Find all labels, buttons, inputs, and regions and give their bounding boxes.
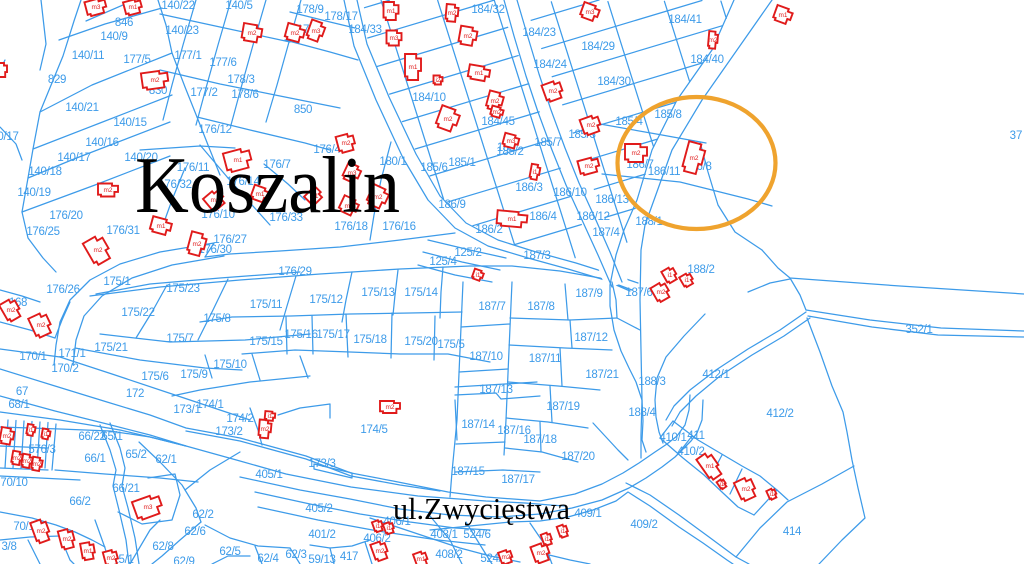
svg-text:172: 172 [126, 388, 144, 400]
svg-text:m2: m2 [375, 548, 384, 555]
svg-text:187/12: 187/12 [574, 332, 607, 344]
svg-text:i1: i1 [667, 272, 672, 279]
svg-text:178/6: 178/6 [231, 89, 258, 101]
svg-text:175/8: 175/8 [203, 313, 230, 325]
svg-text:187/6: 187/6 [625, 287, 652, 299]
svg-text:414: 414 [783, 526, 802, 538]
svg-text:829: 829 [48, 74, 66, 86]
svg-text:846: 846 [115, 17, 133, 29]
svg-text:m2: m2 [492, 109, 501, 116]
svg-text:m2: m2 [103, 187, 112, 194]
svg-text:i1: i1 [386, 525, 391, 532]
svg-text:m3: m3 [585, 9, 594, 16]
svg-text:i1: i1 [43, 431, 48, 438]
svg-text:175/23: 175/23 [166, 283, 199, 295]
svg-text:184/33: 184/33 [348, 24, 381, 36]
svg-text:401/2: 401/2 [308, 529, 335, 541]
svg-text:177/1: 177/1 [174, 50, 201, 62]
svg-text:184/24: 184/24 [533, 59, 567, 71]
svg-text:66/2: 66/2 [69, 496, 90, 508]
svg-text:i1: i1 [28, 427, 33, 434]
svg-text:i1: i1 [475, 272, 480, 279]
svg-text:m2: m2 [93, 247, 102, 254]
svg-text:184/30: 184/30 [597, 76, 630, 88]
svg-text:125/4: 125/4 [429, 256, 457, 268]
svg-text:62/6: 62/6 [184, 526, 205, 538]
svg-text:187/10: 187/10 [469, 351, 502, 363]
svg-text:m2: m2 [656, 289, 665, 296]
svg-text:m2: m2 [689, 155, 698, 162]
svg-text:68/1: 68/1 [8, 399, 29, 411]
svg-text:175/17: 175/17 [316, 329, 349, 341]
svg-text:m2: m2 [12, 455, 21, 462]
svg-text:170/1: 170/1 [19, 351, 46, 363]
svg-text:i1: i1 [684, 277, 689, 284]
svg-text:175/16: 175/16 [284, 329, 317, 341]
svg-text:184/32: 184/32 [471, 4, 504, 16]
svg-text:ul.Zwycięstwa: ul.Zwycięstwa [393, 491, 570, 526]
svg-text:176/25: 176/25 [26, 226, 59, 238]
svg-text:187/19: 187/19 [546, 401, 579, 413]
svg-text:m1: m1 [128, 4, 137, 11]
svg-text:184/10: 184/10 [412, 92, 445, 104]
svg-text:178/3: 178/3 [227, 74, 254, 86]
svg-text:i1: i1 [560, 528, 565, 535]
svg-text:185/7: 185/7 [534, 137, 561, 149]
svg-text:140/16: 140/16 [85, 137, 118, 149]
svg-text:174/5: 174/5 [360, 424, 387, 436]
svg-text:187/8: 187/8 [527, 301, 554, 313]
svg-text:m2: m2 [586, 122, 595, 129]
svg-text:184/41: 184/41 [668, 14, 701, 26]
svg-text:405/2: 405/2 [305, 503, 332, 515]
svg-text:178/17: 178/17 [324, 11, 357, 23]
svg-text:m2: m2 [32, 461, 41, 468]
svg-text:184/23: 184/23 [522, 27, 555, 39]
svg-text:187/9: 187/9 [575, 288, 602, 300]
svg-text:66/1: 66/1 [84, 453, 105, 465]
svg-text:409/1: 409/1 [574, 508, 601, 520]
svg-text:m2: m2 [463, 33, 472, 40]
svg-text:m2: m2 [36, 322, 45, 329]
svg-text:417: 417 [340, 551, 358, 563]
svg-text:175/10: 175/10 [213, 359, 246, 371]
svg-text:412/1: 412/1 [702, 369, 729, 381]
svg-text:62/3: 62/3 [285, 549, 306, 561]
svg-text:187/20: 187/20 [561, 451, 594, 463]
svg-text:i1: i1 [544, 536, 549, 543]
svg-text:176/12: 176/12 [198, 124, 231, 136]
svg-text:m1: m1 [705, 463, 714, 470]
svg-text:175/20: 175/20 [404, 336, 437, 348]
svg-text:m2: m2 [22, 458, 31, 465]
svg-text:i1: i1 [769, 491, 774, 498]
svg-text:170/2: 170/2 [51, 363, 78, 375]
svg-text:140/15: 140/15 [113, 117, 146, 129]
svg-text:176/20: 176/20 [49, 210, 82, 222]
svg-text:187/4: 187/4 [592, 227, 620, 239]
svg-text:186/12: 186/12 [576, 211, 609, 223]
svg-text:m1: m1 [386, 8, 395, 15]
svg-text:140/19: 140/19 [17, 187, 50, 199]
svg-text:m2: m2 [260, 426, 269, 433]
svg-text:m2: m2 [708, 37, 717, 44]
svg-text:184/40: 184/40 [690, 54, 723, 66]
svg-text:m2: m2 [6, 307, 15, 314]
svg-text:188/3: 188/3 [638, 376, 665, 388]
svg-text:67: 67 [16, 386, 28, 398]
svg-text:m2: m2 [548, 88, 557, 95]
svg-text:m3: m3 [311, 28, 320, 35]
svg-text:m2: m2 [536, 550, 545, 557]
svg-text:187/11: 187/11 [529, 353, 562, 365]
svg-text:177/5: 177/5 [123, 54, 150, 66]
svg-text:m1: m1 [83, 548, 92, 555]
svg-text:62/9: 62/9 [173, 556, 194, 564]
svg-text:177/6: 177/6 [209, 57, 236, 69]
svg-text:186/10: 186/10 [553, 187, 586, 199]
svg-text:140/22: 140/22 [161, 0, 194, 12]
svg-text:185/6: 185/6 [420, 162, 447, 174]
svg-text:176/29: 176/29 [278, 266, 311, 278]
svg-text:m1: m1 [507, 216, 516, 223]
svg-text:m3: m3 [389, 35, 398, 42]
svg-text:m1: m1 [474, 70, 483, 77]
svg-text:175/15: 175/15 [249, 336, 282, 348]
svg-text:m2: m2 [741, 486, 750, 493]
svg-text:66/21: 66/21 [112, 483, 139, 495]
svg-text:140/17: 140/17 [57, 152, 90, 164]
svg-text:171/1: 171/1 [58, 348, 85, 360]
svg-text:62/2: 62/2 [192, 509, 213, 521]
svg-text:524/6: 524/6 [463, 529, 490, 541]
svg-text:187/14: 187/14 [461, 419, 495, 431]
svg-text:m2: m2 [62, 536, 71, 543]
svg-text:173/3: 173/3 [308, 458, 335, 470]
svg-text:187/13: 187/13 [479, 384, 512, 396]
svg-text:m2: m2 [192, 241, 201, 248]
svg-text:175/11: 175/11 [250, 299, 283, 311]
svg-text:m1: m1 [416, 556, 425, 563]
svg-text:m2: m2 [584, 163, 593, 170]
svg-text:186/3: 186/3 [515, 182, 542, 194]
svg-text:187/15: 187/15 [451, 466, 484, 478]
svg-text:175/6: 175/6 [141, 371, 168, 383]
svg-text:187/3: 187/3 [523, 250, 550, 262]
svg-text:352/1: 352/1 [905, 324, 932, 336]
svg-text:m3: m3 [143, 504, 152, 511]
svg-text:Koszalin: Koszalin [135, 141, 400, 230]
svg-text:186/11: 186/11 [648, 166, 681, 178]
svg-text:175/18: 175/18 [353, 334, 386, 346]
svg-text:185/8: 185/8 [654, 109, 681, 121]
svg-text:408/2: 408/2 [435, 549, 462, 561]
svg-text:m3: m3 [506, 138, 515, 145]
svg-text:140/18: 140/18 [28, 166, 61, 178]
svg-text:174/1: 174/1 [196, 399, 223, 411]
svg-text:37: 37 [1010, 130, 1023, 142]
svg-text:62/4: 62/4 [257, 553, 279, 564]
svg-text:62/1: 62/1 [155, 454, 176, 466]
svg-text:186/13: 186/13 [595, 194, 628, 206]
svg-text:140/21: 140/21 [65, 102, 98, 114]
svg-text:m2: m2 [247, 30, 256, 37]
svg-text:i2: i2 [435, 77, 440, 84]
svg-text:174/2: 174/2 [226, 413, 253, 425]
svg-text:65/2: 65/2 [125, 449, 146, 461]
svg-text:185/1: 185/1 [448, 157, 475, 169]
svg-text:62/8: 62/8 [152, 541, 173, 553]
svg-text:184/29: 184/29 [581, 41, 614, 53]
svg-text:i1: i1 [267, 413, 272, 420]
svg-text:576/3: 576/3 [28, 444, 55, 456]
svg-text:187/18: 187/18 [523, 434, 556, 446]
svg-text:m2: m2 [501, 554, 510, 561]
svg-text:187/17: 187/17 [501, 474, 534, 486]
svg-text:m2: m2 [290, 30, 299, 37]
svg-text:175/13: 175/13 [361, 287, 394, 299]
svg-text:140/5: 140/5 [225, 0, 252, 12]
svg-text:m2: m2 [36, 528, 45, 535]
svg-text:m2: m2 [385, 404, 394, 411]
svg-text:0/17: 0/17 [0, 131, 19, 143]
svg-text:408/1: 408/1 [430, 529, 457, 541]
svg-text:186/4: 186/4 [529, 211, 557, 223]
svg-text:140/11: 140/11 [72, 50, 105, 62]
svg-text:409/2: 409/2 [630, 519, 657, 531]
svg-text:m2: m2 [631, 150, 640, 157]
svg-text:850: 850 [294, 104, 312, 116]
svg-text:140/9: 140/9 [100, 31, 127, 43]
svg-text:140/23: 140/23 [165, 25, 198, 37]
svg-text:412/2: 412/2 [766, 408, 793, 420]
svg-text:125/2: 125/2 [454, 247, 481, 259]
svg-text:175/22: 175/22 [121, 307, 154, 319]
svg-text:187/7: 187/7 [478, 301, 505, 313]
svg-text:70/10: 70/10 [0, 477, 27, 489]
svg-text:175/7: 175/7 [166, 333, 193, 345]
svg-text:405/1: 405/1 [255, 469, 282, 481]
svg-text:178/9: 178/9 [296, 4, 323, 16]
svg-text:m1: m1 [778, 12, 787, 19]
svg-text:175/9: 175/9 [180, 369, 207, 381]
svg-text:m3: m3 [91, 4, 100, 11]
svg-text:m2: m2 [443, 116, 452, 123]
svg-text:187/21: 187/21 [585, 369, 618, 381]
svg-text:176/26: 176/26 [46, 284, 79, 296]
svg-text:m1: m1 [408, 64, 417, 71]
svg-text:411: 411 [687, 430, 704, 442]
svg-text:175/1: 175/1 [103, 276, 130, 288]
svg-text:3/8: 3/8 [1, 541, 16, 553]
svg-text:188/4: 188/4 [628, 407, 656, 419]
svg-text:i1: i1 [719, 481, 724, 488]
svg-text:m2: m2 [150, 77, 159, 84]
svg-text:177/2: 177/2 [190, 87, 217, 99]
svg-text:186/9: 186/9 [438, 199, 465, 211]
svg-text:175/5: 175/5 [437, 339, 464, 351]
svg-text:m2: m2 [447, 10, 456, 17]
svg-text:i1: i1 [532, 169, 537, 176]
svg-text:i1: i1 [375, 523, 380, 530]
svg-text:186/2: 186/2 [475, 224, 502, 236]
svg-text:175/14: 175/14 [404, 287, 438, 299]
svg-text:410/1: 410/1 [659, 432, 686, 444]
svg-text:175/12: 175/12 [309, 294, 342, 306]
svg-text:62/5: 62/5 [219, 546, 240, 558]
svg-text:65/1: 65/1 [101, 431, 122, 443]
svg-text:m2: m2 [106, 555, 115, 562]
svg-text:59/13: 59/13 [308, 554, 335, 564]
svg-text:188/2: 188/2 [687, 264, 714, 276]
svg-text:173/2: 173/2 [215, 426, 242, 438]
svg-text:m2: m2 [490, 98, 499, 105]
svg-text:m2: m2 [2, 433, 11, 440]
svg-text:175/21: 175/21 [94, 342, 127, 354]
